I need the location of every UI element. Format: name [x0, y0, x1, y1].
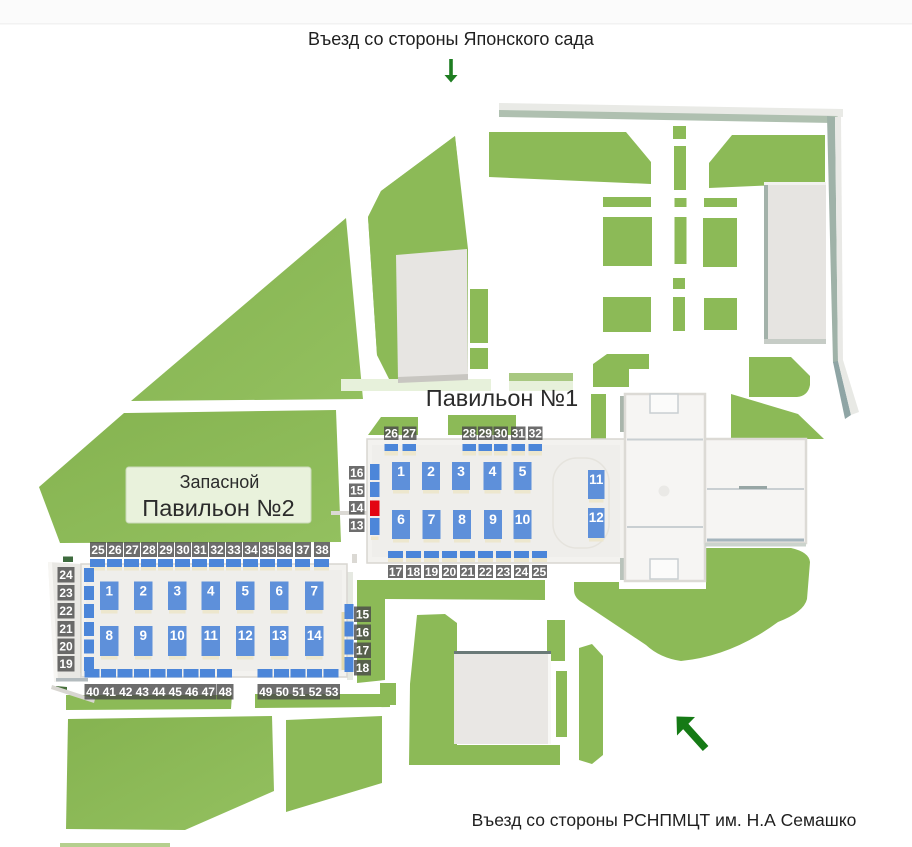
svg-text:34: 34 [244, 543, 258, 557]
svg-text:Въезд со стороны РСНПМЦТ им. Н: Въезд со стороны РСНПМЦТ им. Н.А Семашко [472, 810, 857, 830]
svg-text:14: 14 [307, 628, 323, 643]
svg-text:21: 21 [461, 565, 475, 579]
svg-text:7: 7 [310, 584, 318, 599]
svg-text:1: 1 [397, 463, 405, 479]
svg-text:3: 3 [457, 463, 465, 479]
svg-text:21: 21 [59, 622, 73, 636]
svg-text:33: 33 [227, 543, 241, 557]
svg-text:37: 37 [296, 543, 310, 557]
svg-text:16: 16 [350, 466, 364, 480]
svg-text:26: 26 [385, 427, 399, 441]
svg-text:38: 38 [315, 543, 329, 557]
svg-text:23: 23 [497, 565, 511, 579]
svg-text:32: 32 [210, 543, 224, 557]
svg-text:9: 9 [139, 628, 147, 643]
svg-text:6: 6 [275, 584, 283, 599]
svg-text:29: 29 [479, 427, 493, 441]
svg-text:9: 9 [489, 511, 497, 527]
svg-text:19: 19 [59, 657, 73, 671]
svg-text:26: 26 [108, 543, 122, 557]
svg-text:31: 31 [512, 427, 526, 441]
svg-text:16: 16 [356, 626, 370, 640]
svg-text:15: 15 [356, 608, 370, 622]
svg-text:19: 19 [425, 565, 439, 579]
svg-text:42: 42 [119, 685, 133, 699]
svg-text:6: 6 [397, 511, 405, 527]
svg-text:31: 31 [193, 543, 207, 557]
svg-text:22: 22 [59, 604, 73, 618]
svg-text:53: 53 [325, 685, 339, 699]
svg-text:18: 18 [356, 661, 370, 675]
svg-text:30: 30 [176, 543, 190, 557]
svg-text:8: 8 [458, 511, 466, 527]
svg-text:Въезд со стороны Японского сад: Въезд со стороны Японского сада [308, 29, 595, 49]
svg-text:15: 15 [350, 484, 364, 498]
svg-text:Павильон №1: Павильон №1 [426, 385, 578, 411]
svg-text:25: 25 [91, 543, 105, 557]
svg-text:48: 48 [219, 685, 233, 699]
svg-text:27: 27 [403, 427, 417, 441]
svg-text:18: 18 [407, 565, 421, 579]
svg-text:47: 47 [202, 685, 216, 699]
svg-text:36: 36 [278, 543, 292, 557]
svg-text:22: 22 [479, 565, 493, 579]
svg-text:4: 4 [207, 584, 215, 599]
svg-text:13: 13 [272, 628, 288, 643]
svg-text:11: 11 [204, 628, 219, 643]
svg-text:17: 17 [356, 644, 370, 658]
svg-text:10: 10 [170, 628, 185, 643]
svg-text:40: 40 [86, 685, 100, 699]
svg-text:13: 13 [350, 519, 364, 533]
svg-text:35: 35 [261, 543, 275, 557]
svg-text:5: 5 [241, 584, 249, 599]
svg-text:8: 8 [105, 628, 113, 643]
svg-text:Запасной: Запасной [180, 472, 260, 492]
svg-text:4: 4 [489, 463, 497, 479]
svg-text:44: 44 [152, 685, 166, 699]
svg-text:25: 25 [533, 565, 547, 579]
svg-text:28: 28 [142, 543, 156, 557]
svg-text:1: 1 [105, 584, 113, 599]
svg-text:32: 32 [529, 427, 543, 441]
svg-text:5: 5 [519, 463, 527, 479]
svg-text:2: 2 [427, 463, 435, 479]
svg-text:41: 41 [103, 685, 117, 699]
svg-text:20: 20 [59, 640, 73, 654]
svg-text:24: 24 [515, 565, 529, 579]
svg-text:29: 29 [159, 543, 173, 557]
svg-text:24: 24 [59, 568, 73, 582]
svg-text:12: 12 [238, 628, 253, 643]
svg-text:51: 51 [292, 685, 306, 699]
svg-text:23: 23 [59, 586, 73, 600]
svg-text:28: 28 [463, 427, 477, 441]
svg-text:30: 30 [494, 427, 508, 441]
svg-text:45: 45 [169, 685, 183, 699]
svg-text:14: 14 [350, 501, 364, 515]
svg-text:17: 17 [389, 565, 403, 579]
svg-text:12: 12 [589, 510, 604, 525]
svg-text:43: 43 [136, 685, 150, 699]
svg-text:Павильон №2: Павильон №2 [142, 495, 294, 521]
svg-text:49: 49 [259, 685, 273, 699]
svg-text:11: 11 [589, 472, 604, 487]
svg-text:46: 46 [185, 685, 199, 699]
svg-text:3: 3 [173, 584, 181, 599]
svg-text:10: 10 [515, 511, 531, 527]
svg-text:27: 27 [125, 543, 139, 557]
svg-text:7: 7 [428, 511, 436, 527]
svg-text:52: 52 [309, 685, 323, 699]
svg-text:20: 20 [443, 565, 457, 579]
svg-text:50: 50 [276, 685, 290, 699]
svg-text:2: 2 [139, 584, 147, 599]
